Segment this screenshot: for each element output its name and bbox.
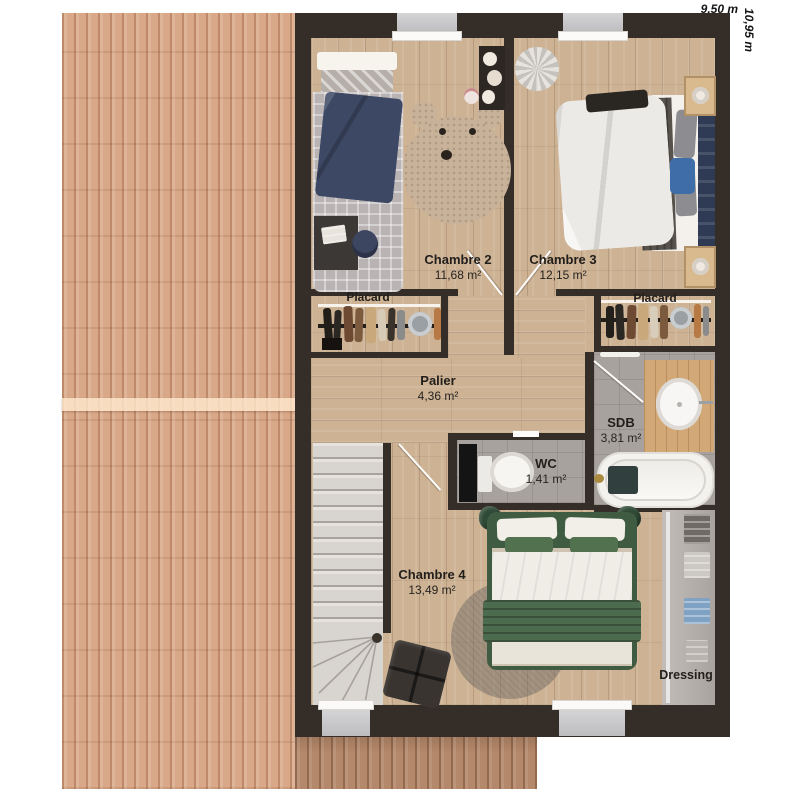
window-blind-top-right: [563, 13, 623, 32]
pillow-gray: [673, 109, 697, 158]
plush-toy: [487, 70, 502, 86]
pillow-green: [570, 537, 618, 553]
room-label-dressing: Dressing: [626, 668, 746, 682]
single-bed-headboard: [317, 52, 397, 70]
room-area-chambre2: 11,68 m²: [398, 268, 518, 282]
room-area-palier: 4,36 m²: [378, 389, 498, 403]
clothes-item: [377, 309, 387, 341]
window-frame-top-left: [392, 31, 462, 41]
roof-ridge: [62, 398, 299, 411]
bath-caddy: [608, 466, 638, 494]
window-blind-top-left: [397, 13, 457, 32]
room-name-chambre2: Chambre 2: [398, 253, 518, 268]
room-name-placard-right: Placard: [595, 292, 715, 306]
room-name-chambre4: Chambre 4: [372, 568, 492, 583]
nightstand: [684, 246, 716, 288]
room-name-palier: Palier: [378, 374, 498, 389]
storage-box: [322, 338, 342, 350]
clothes-item: [343, 306, 353, 342]
floor-plan-canvas: 9,50 m 10,95 m: [0, 0, 800, 800]
wall-placard-left-side: [441, 296, 448, 358]
lamp: [692, 87, 709, 104]
bathtub: [597, 452, 714, 508]
room-label-palier: Palier 4,36 m²: [378, 374, 498, 403]
clothes-item: [615, 304, 625, 340]
bed-duvet: [492, 552, 632, 600]
folded-clothes: [684, 598, 710, 624]
window-frame-top-right: [558, 31, 628, 41]
clothes-item: [694, 304, 701, 338]
storage-basket: [408, 312, 432, 336]
double-bed-headboard: [697, 93, 715, 253]
room-name-dressing: Dressing: [626, 668, 746, 682]
single-bed-pillow: [321, 70, 393, 94]
clothes-item: [366, 307, 376, 343]
folded-clothes: [684, 552, 710, 578]
folded-clothes: [686, 640, 708, 662]
closet-clothes-left: [318, 300, 442, 352]
nightstand: [684, 76, 716, 116]
window-frame-bottom-left: [318, 700, 374, 710]
room-name-placard-left: Placard: [308, 291, 428, 305]
dimension-height-label: 10,95 m: [742, 8, 756, 78]
double-bed-duvet: [555, 94, 675, 251]
room-name-sdb: SDB: [561, 416, 681, 431]
clothes-item: [434, 308, 441, 340]
room-label-placard-right: Placard: [595, 292, 715, 306]
room-label-chambre3: Chambre 3 12,15 m²: [503, 253, 623, 282]
plush-toy: [482, 90, 495, 104]
single-bed-blanket: [315, 91, 404, 204]
room-label-placard-left: Placard: [308, 291, 428, 305]
clothes-item: [638, 304, 648, 340]
wall-placard-left-front: [311, 352, 448, 358]
room-name-wc: WC: [486, 457, 606, 472]
wall-partition-stub: [504, 289, 514, 355]
sink-faucet: [699, 401, 713, 404]
room-label-sdb: SDB 3,81 m²: [561, 416, 681, 445]
room-area-chambre4: 13,49 m²: [372, 583, 492, 597]
bear-rug-nose: [441, 150, 452, 160]
staircase-winder: [313, 633, 383, 705]
bed-foot-band: [492, 642, 632, 664]
cushion-blue: [670, 158, 695, 194]
clothes-item: [626, 305, 636, 339]
folded-clothes: [684, 514, 710, 544]
door-leaf-wc: [513, 431, 539, 437]
pouf: [515, 47, 559, 91]
room-label-chambre4: Chambre 4 13,49 m²: [372, 568, 492, 597]
desk-chair: [352, 230, 378, 258]
bear-rug-eye: [439, 128, 446, 135]
pillow-green: [505, 537, 553, 553]
wall-staircase: [383, 443, 391, 633]
room-label-chambre2: Chambre 2 11,68 m²: [398, 253, 518, 282]
plush-toy-floor: [464, 88, 479, 104]
room-area-chambre3: 12,15 m²: [503, 268, 623, 282]
bear-rug-eye: [469, 128, 476, 135]
clothes-item: [354, 308, 363, 342]
bed-blanket-green: [483, 600, 641, 642]
toy-shelf: [479, 46, 505, 110]
sink-drain: [677, 402, 682, 407]
staircase-flight: [313, 443, 383, 633]
clothes-item: [387, 308, 395, 341]
storage-basket: [670, 307, 692, 329]
desk-papers: [321, 224, 347, 244]
window-blind-bottom-left: [322, 710, 370, 736]
room-label-wc: WC 1,41 m²: [486, 457, 606, 486]
double-bed-frame-green: [487, 512, 637, 670]
window-blind-bottom-center: [559, 710, 625, 736]
room-area-sdb: 3,81 m²: [561, 431, 681, 445]
room-area-wc: 1,41 m²: [486, 472, 606, 486]
wall-wc-south: [448, 503, 594, 510]
clothes-item: [649, 306, 658, 338]
clothes-item: [703, 306, 709, 336]
clothes-item: [397, 310, 405, 340]
clothes-item: [333, 310, 342, 340]
clothes-item: [606, 306, 614, 338]
wc-cabinet: [459, 444, 477, 502]
window-frame-bottom-center: [552, 700, 632, 710]
roof-bottom: [295, 737, 537, 789]
bear-rug-head: [403, 116, 511, 224]
roof-left: [62, 13, 299, 789]
clothes-item: [660, 305, 668, 339]
towel-rail: [600, 352, 640, 357]
lamp: [692, 258, 709, 275]
wall-wc-west: [448, 440, 457, 510]
room-name-chambre3: Chambre 3: [503, 253, 623, 268]
plush-toy: [483, 52, 497, 66]
